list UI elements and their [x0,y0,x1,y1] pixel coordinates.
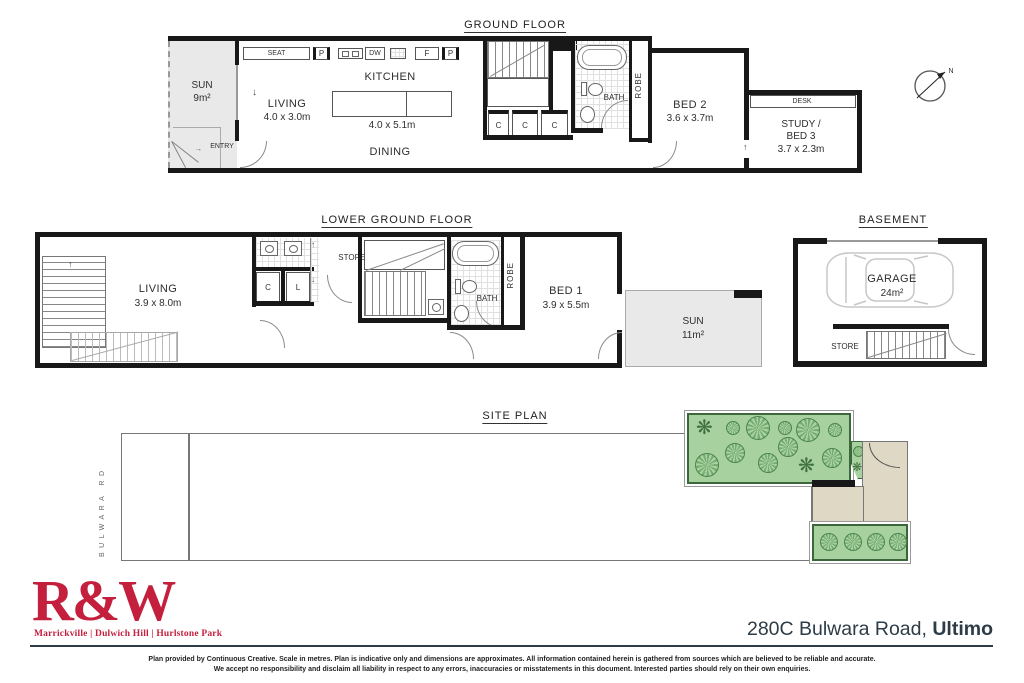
basin-icon [428,299,444,315]
store-label-basement: STORE [831,342,858,351]
plant-icon: ❋ [696,418,713,438]
seat-label: SEAT [268,50,286,57]
room-label-garage: GARAGE [867,273,916,285]
room-dims-living-lg: 3.9 x 8.0m [135,298,182,309]
room-label-sun-gf: SUN [191,80,212,91]
wall [358,237,362,320]
tree-icon [844,533,862,551]
wall [168,168,862,173]
wall [938,238,987,244]
ground-floor-title: GROUND FLOOR [464,19,566,33]
wall [447,325,525,330]
wall [857,95,862,173]
sink-icon [338,48,363,59]
room-label-living-gf: LIVING [268,98,306,110]
arrow-up-icon: ↑ [311,241,315,249]
cupboard-label: C [496,121,502,130]
tree-icon [695,453,719,477]
sink-bowl [342,51,349,57]
property-address: 280C Bulwara Road, Ultimo [747,618,993,641]
wall [793,361,987,367]
wall [617,232,622,294]
wall [652,48,748,53]
tree-icon [746,416,770,440]
wall [571,41,575,133]
logo-offices-line: Marrickville | Dulwich Hill | Hurlstone … [34,629,222,639]
site-plan-title: SITE PLAN [482,410,547,424]
garage-door-line [827,240,938,242]
wall [35,232,622,237]
dishwasher-label: DW [369,50,381,57]
room-label-sun-lg: SUN [682,316,703,327]
room-label-living-lg: LIVING [139,283,177,295]
door-arc [260,320,285,348]
wall [793,238,827,244]
room-label-bed2: BED 2 [673,99,707,111]
wall [235,41,239,65]
arrow-up-icon: ↑ [743,143,748,152]
footer-rule [30,645,993,647]
room-label-kitchen: KITCHEN [364,71,415,83]
courtyard-area [812,486,864,524]
arrow-down-icon: ↓ [311,276,315,284]
tree-icon [796,418,820,442]
room-dims-bed2: 3.6 x 3.7m [667,113,714,124]
lot-divider-line [188,433,190,561]
wall [35,232,40,368]
tree-icon [758,453,778,473]
wall [744,158,749,168]
room-label-robe-gf: ROBE [634,72,643,99]
basin-icon [580,106,595,123]
compass-north-label: N [948,68,953,75]
lower-ground-floor-title: LOWER GROUND FLOOR [321,214,472,228]
tree-icon [778,437,798,457]
wall [833,324,949,329]
wall [483,135,573,140]
tree-icon [778,421,792,435]
floorplan-page: GROUND FLOOR SUN 9m² → ENTRY ↓ SEAT P DW… [0,0,1024,683]
wall [575,128,603,133]
wall [281,271,285,304]
disclaimer-line-2: We accept no responsibility and disclaim… [214,666,811,673]
door-arc [598,332,622,359]
wall [252,301,314,306]
address-main: 280C Bulwara Road, [747,618,927,640]
street-label: BULWARA RD [99,466,106,557]
wall [629,41,632,141]
sink-bowl [352,51,359,57]
tree-icon [828,423,842,437]
wall [648,41,652,143]
door-arc [327,275,352,303]
fridge-label: F [425,49,430,58]
arrow-right-icon: → [195,146,202,153]
cupboard-label: C [522,121,528,130]
tree-icon [726,421,740,435]
cupboard-label: C [552,121,558,130]
tree-icon [822,448,842,468]
wall [358,318,451,323]
stair-landing [487,78,549,107]
room-dims-study: 3.7 x 2.3m [778,144,825,155]
room-label-dining: DINING [370,146,411,158]
wall [734,290,762,298]
room-area-sun-lg: 11m² [682,330,704,341]
tree-icon [820,533,838,551]
wall [35,363,622,368]
wall [744,48,749,140]
room-dims-kitchen: 4.0 x 5.1m [369,120,416,131]
tree-icon [867,533,885,551]
laundry-tub-icon [284,241,302,256]
room-label-study-line1: STUDY / [781,119,820,130]
toilet-icon [462,280,477,293]
window-line [236,65,238,120]
pantry-label: P [319,49,324,58]
room-area-garage: 24m² [881,288,904,299]
rw-logo: R&W [32,572,174,630]
wall [793,238,798,367]
cupboard-label: C [265,283,271,292]
desk-label: DESK [792,98,811,105]
room-label-study-line2: BED 3 [787,131,816,142]
wall [982,238,987,367]
room-label-robe-lg: ROBE [506,262,515,289]
disclaimer-line-1: Plan provided by Continuous Creative. Sc… [148,656,875,663]
plant-icon: ❋ [798,456,815,476]
wall [501,237,504,327]
tree-icon [889,533,907,551]
tree-icon [725,443,745,463]
basin-icon [454,305,469,322]
arrow-up-icon: ↑ [68,260,73,269]
stairs-lg-main [364,271,426,316]
laundry-tub-icon [260,241,278,256]
address-suburb: Ultimo [932,618,993,640]
cooktop-icon [390,48,406,59]
toilet-icon [588,83,603,96]
wall [549,41,553,110]
sun-room-lg [625,290,762,367]
wall [520,237,525,330]
door-arc [948,329,975,355]
linen-label: L [296,283,300,292]
arrow-down-icon: ↓ [252,88,257,98]
wall [629,138,652,142]
wall [235,120,239,141]
basement-title: BASEMENT [859,214,928,228]
wall [812,480,855,487]
room-label-bed1: BED 1 [549,285,583,297]
bathtub-icon [577,45,627,70]
pantry-label: P [448,49,453,58]
plant-icon: ❋ [852,461,862,473]
door-arc [653,141,677,168]
island-divider [406,92,407,116]
toilet-tank [581,82,587,96]
bathtub-icon [452,241,499,266]
room-area-sun-gf: 9m² [193,93,210,104]
entry-label: ENTRY [210,143,234,150]
door-arc [240,141,267,168]
kitchen-island [332,91,452,117]
toilet-tank [455,279,461,294]
door-arc [450,332,474,359]
room-dims-living-gf: 4.0 x 3.0m [264,112,311,123]
room-dims-bed1: 3.9 x 5.5m [543,300,590,311]
